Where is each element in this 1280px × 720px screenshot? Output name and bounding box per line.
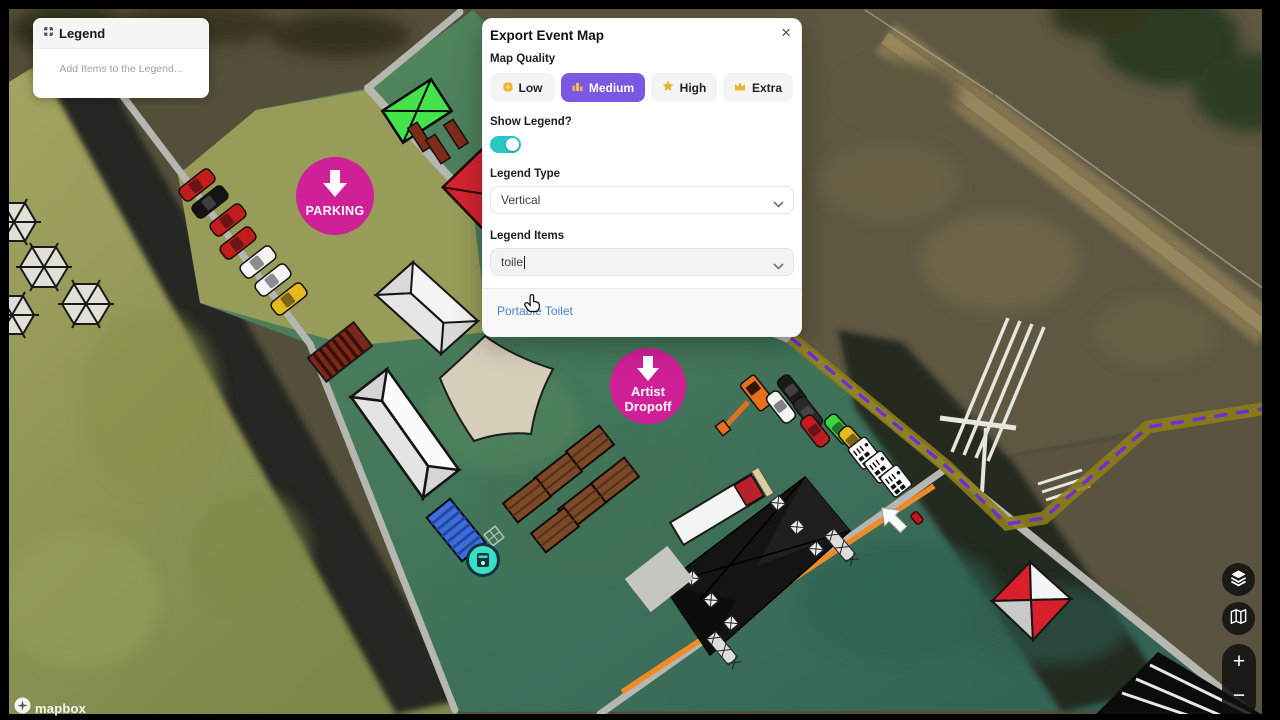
parking-pin[interactable]: PARKING — [296, 157, 374, 235]
podium-icon — [572, 81, 583, 95]
chevron-down-icon — [773, 259, 784, 273]
move-icon[interactable] — [43, 24, 54, 42]
artist-pin-label-2: Dropoff — [625, 399, 673, 414]
legend-type-select[interactable]: Vertical — [490, 186, 794, 214]
mapbox-wordmark: mapbox — [35, 701, 86, 716]
show-legend-label: Show Legend? — [490, 116, 794, 128]
letterbox-left — [0, 0, 9, 720]
layers-icon — [1229, 568, 1248, 592]
legend-items-input[interactable]: toile — [490, 248, 794, 276]
map-icon — [1229, 607, 1248, 631]
star-icon-button quality-high-button[interactable]: High — [651, 73, 717, 102]
letterbox-right — [1262, 0, 1280, 720]
legend-panel-title: Legend — [59, 26, 105, 41]
quality-options-row: Low Medium High Extra — [490, 73, 794, 102]
legend-panel: Legend Add Items to the Legend... — [33, 18, 209, 98]
show-legend-toggle[interactable] — [490, 136, 521, 153]
toggle-knob — [506, 138, 519, 151]
legend-empty-text: Add Items to the Legend... — [33, 63, 209, 75]
map-quality-label: Map Quality — [490, 53, 794, 65]
letterbox-top — [0, 0, 1280, 9]
legend-type-label: Legend Type — [490, 168, 794, 180]
mapbox-logo[interactable]: mapbox — [14, 697, 86, 719]
legend-items-label: Legend Items — [490, 230, 794, 242]
chevron-down-icon — [773, 197, 784, 211]
zoom-control: + − — [1222, 644, 1256, 720]
quality-low-button[interactable]: Low — [490, 73, 555, 102]
star-icon — [662, 80, 674, 95]
legend-panel-header[interactable]: Legend — [33, 18, 209, 49]
export-event-map-modal: Export Event Map × Map Quality Low Mediu… — [482, 18, 802, 337]
modal-title: Export Event Map — [490, 28, 794, 43]
close-icon[interactable]: × — [781, 24, 791, 41]
quality-medium-button[interactable]: Medium — [561, 73, 645, 102]
crown-icon — [734, 81, 746, 95]
layers-button[interactable] — [1222, 563, 1255, 596]
basemap-button[interactable] — [1222, 602, 1255, 635]
text-caret — [524, 256, 525, 269]
quality-extra-button[interactable]: Extra — [723, 73, 793, 102]
cursor-hand-icon — [524, 294, 541, 318]
zoom-out-button[interactable]: − — [1222, 678, 1256, 712]
parking-pin-label: PARKING — [306, 204, 365, 218]
zoom-in-button[interactable]: + — [1222, 644, 1256, 678]
toilet-marker[interactable] — [468, 545, 499, 576]
artist-pin-label-1: Artist — [631, 384, 666, 399]
coin-icon — [503, 81, 513, 95]
app-frame: PARKING Artist Dropoff Legend Add Items … — [0, 0, 1280, 720]
letterbox-bottom — [0, 714, 1280, 720]
artist-dropoff-pin[interactable]: Artist Dropoff — [610, 348, 686, 424]
mapbox-icon — [14, 697, 31, 719]
